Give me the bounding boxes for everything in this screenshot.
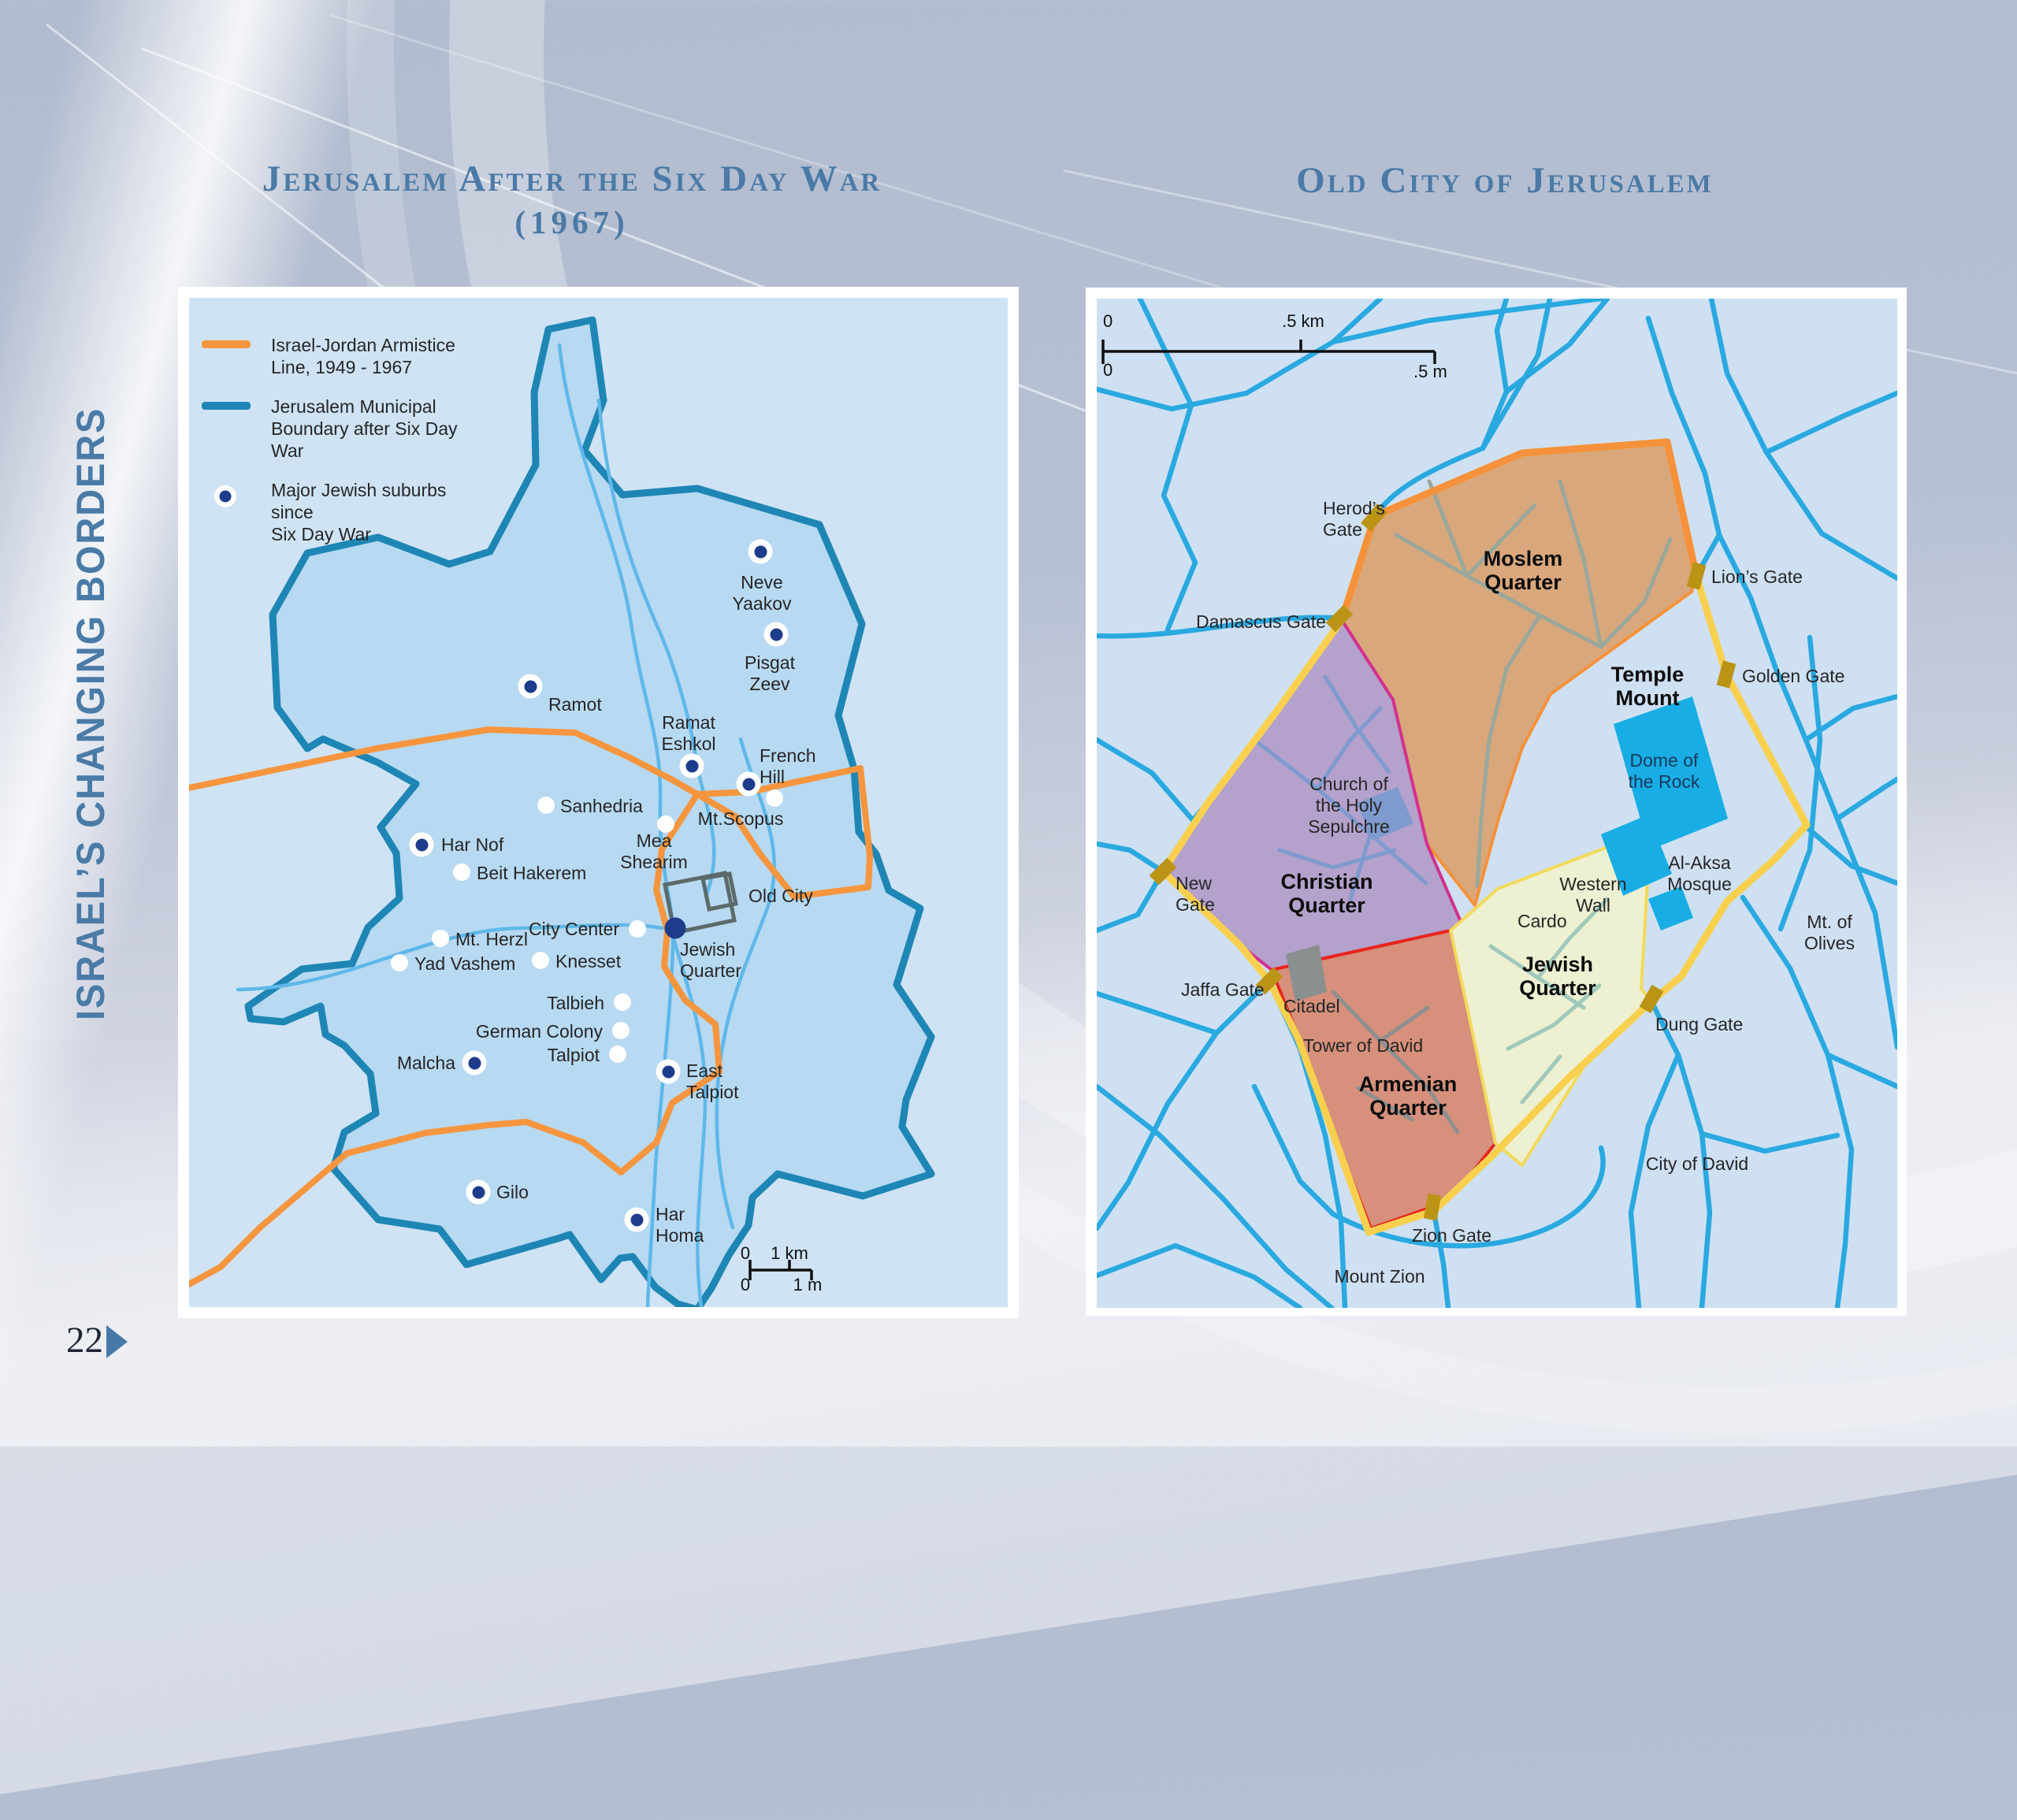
left-map: Israel-Jordan ArmisticeLine, 1949 - 1967… bbox=[189, 298, 1008, 1307]
beit-hakerem-dot bbox=[453, 864, 470, 881]
knesset-label: Knesset bbox=[555, 951, 621, 972]
yad-vashem-label: Yad Vashem bbox=[414, 953, 515, 975]
mt-of-olives-label: Mt. ofOlives bbox=[1804, 912, 1855, 954]
ramot-label: Ramot bbox=[548, 694, 602, 715]
pisgat-zeev-dot bbox=[764, 622, 789, 647]
rscale-half-m-label: .5 m bbox=[1413, 362, 1447, 382]
ramat-eshkol-dot bbox=[680, 754, 704, 778]
jewish-quarter-label: JewishQuarter bbox=[1519, 953, 1596, 1000]
sidebar-vertical-title: ISRAEL’S CHANGING BORDERS bbox=[68, 188, 118, 1021]
page-number-text: 22 bbox=[66, 1320, 103, 1361]
talbieh-dot bbox=[614, 994, 631, 1011]
church-holy-sepulchre-label: Church ofthe HolySepulchre bbox=[1308, 774, 1390, 838]
malcha-label: Malcha bbox=[397, 1053, 455, 1074]
neve-yaakov-label: NeveYaakov bbox=[732, 572, 791, 615]
municipal-line-swatch bbox=[202, 396, 271, 410]
christian-quarter-label: ChristianQuarter bbox=[1280, 870, 1373, 917]
east-talpiot-label: EastTalpiot bbox=[686, 1060, 738, 1103]
legend-item-suburbs: Major Jewish suburbs sinceSix Day War bbox=[202, 479, 493, 545]
damascus-gate-label: Damascus Gate bbox=[1196, 611, 1326, 633]
sanhedria-label: Sanhedria bbox=[560, 796, 643, 817]
new-gate-label: NewGate bbox=[1176, 873, 1215, 916]
zion-gate-label: Zion Gate bbox=[1412, 1225, 1491, 1246]
knesset-dot bbox=[532, 952, 549, 969]
armenian-quarter-label: ArmenianQuarter bbox=[1359, 1072, 1458, 1120]
old-city-label: Old City bbox=[748, 886, 813, 907]
right-map-svg bbox=[1097, 299, 1897, 1308]
rscale-zero-km-label: 0 bbox=[1103, 311, 1113, 332]
gilo-label: Gilo bbox=[496, 1182, 529, 1203]
scale-zero-km-label: 0 bbox=[741, 1243, 750, 1264]
talpiot-label: Talpiot bbox=[548, 1045, 600, 1066]
moslem-quarter-label: MoslemQuarter bbox=[1484, 547, 1563, 594]
mt-scopus-label: Mt.Scopus bbox=[698, 808, 784, 830]
jaffa-gate-label: Jaffa Gate bbox=[1181, 979, 1265, 1001]
left-map-panel: Israel-Jordan ArmisticeLine, 1949 - 1967… bbox=[178, 287, 1019, 1318]
har-nof-label: Har Nof bbox=[441, 834, 503, 856]
sanhedria-dot bbox=[537, 797, 555, 814]
rscale-zero-m-label: 0 bbox=[1103, 360, 1113, 381]
suburb-dot-swatch bbox=[202, 479, 271, 507]
golden-gate-label: Golden Gate bbox=[1742, 666, 1844, 687]
mount-zion-label: Mount Zion bbox=[1334, 1266, 1425, 1287]
ramat-eshkol-label: RamatEshkol bbox=[661, 712, 715, 755]
tower-of-david-label: Tower of David bbox=[1303, 1035, 1423, 1057]
temple-mount-label: TempleMount bbox=[1611, 663, 1685, 710]
legend-item-municipal: Jerusalem MunicipalBoundary after Six Da… bbox=[202, 396, 493, 462]
city-center-dot bbox=[629, 920, 646, 938]
scale-1km-label: 1 km bbox=[771, 1243, 808, 1264]
right-map: Herod’sGateDamascus GateLion’s GateGolde… bbox=[1097, 299, 1897, 1308]
right-map-panel: Herod’sGateDamascus GateLion’s GateGolde… bbox=[1086, 288, 1907, 1316]
talbieh-label: Talbieh bbox=[547, 993, 604, 1014]
mt-scopus-dot bbox=[766, 789, 783, 807]
herods-gate-label: Herod’sGate bbox=[1323, 498, 1385, 540]
talpiot-dot bbox=[609, 1046, 626, 1063]
left-map-title-line2: (1967) bbox=[217, 202, 927, 243]
legend-item-armistice: Israel-Jordan ArmisticeLine, 1949 - 1967 bbox=[202, 334, 493, 378]
malcha-dot bbox=[462, 1051, 487, 1075]
french-hill-label: FrenchHill bbox=[760, 745, 816, 788]
french-hill-dot bbox=[737, 772, 761, 797]
mea-shearim-label: MeaShearim bbox=[620, 830, 688, 873]
legend-item-label: Israel-Jordan ArmisticeLine, 1949 - 1967 bbox=[271, 334, 455, 378]
western-wall-label: WesternWall bbox=[1559, 874, 1626, 916]
har-nof-dot bbox=[410, 833, 434, 857]
citadel-label: Citadel bbox=[1283, 996, 1340, 1017]
gilo-dot bbox=[466, 1180, 491, 1205]
scale-zero-m-label: 0 bbox=[741, 1275, 750, 1295]
german-colony-dot bbox=[612, 1022, 630, 1039]
east-talpiot-dot bbox=[656, 1060, 681, 1084]
legend-item-label: Major Jewish suburbs sinceSix Day War bbox=[271, 479, 493, 545]
left-map-title: Jerusalem After the Six Day War (1967) bbox=[217, 156, 927, 243]
armistice-line-swatch bbox=[202, 334, 271, 348]
city-center-label: City Center bbox=[529, 919, 619, 940]
page-arrow-icon bbox=[106, 1325, 128, 1358]
mt-herzl-dot bbox=[432, 930, 449, 947]
legend: Israel-Jordan ArmisticeLine, 1949 - 1967… bbox=[202, 334, 493, 563]
left-map-title-line1: Jerusalem After the Six Day War bbox=[217, 156, 927, 202]
jewish-quarter-left-dot bbox=[665, 918, 686, 939]
dome-of-the-rock-label: Dome ofthe Rock bbox=[1629, 750, 1700, 793]
right-map-title: Old City of Jerusalem bbox=[1261, 158, 1749, 204]
scale-1m-label: 1 m bbox=[793, 1275, 823, 1295]
right-scale-bar bbox=[1103, 340, 1435, 364]
har-homa-label: HarHoma bbox=[656, 1204, 704, 1246]
german-colony-label: German Colony bbox=[476, 1021, 603, 1042]
jewish-quarter-left-label: JewishQuarter bbox=[680, 939, 741, 982]
dung-gate-label: Dung Gate bbox=[1655, 1014, 1743, 1035]
pisgat-zeev-label: PisgatZeev bbox=[745, 652, 795, 695]
al-aksa-mosque-label: Al-AksaMosque bbox=[1667, 852, 1732, 895]
city-of-david-label: City of David bbox=[1646, 1153, 1748, 1175]
ramot-dot bbox=[518, 674, 543, 699]
yad-vashem-dot bbox=[391, 954, 408, 971]
page-number: 22 bbox=[66, 1319, 128, 1361]
cardo-label: Cardo bbox=[1517, 911, 1567, 932]
rscale-half-km-label: .5 km bbox=[1282, 311, 1324, 332]
lions-gate-label: Lion’s Gate bbox=[1711, 566, 1803, 588]
har-homa-dot bbox=[625, 1208, 649, 1232]
legend-item-label: Jerusalem MunicipalBoundary after Six Da… bbox=[271, 396, 493, 462]
mt-herzl-label: Mt. Herzl bbox=[455, 929, 528, 950]
beit-hakerem-label: Beit Hakerem bbox=[477, 863, 586, 884]
neve-yaakov-dot bbox=[748, 540, 773, 564]
